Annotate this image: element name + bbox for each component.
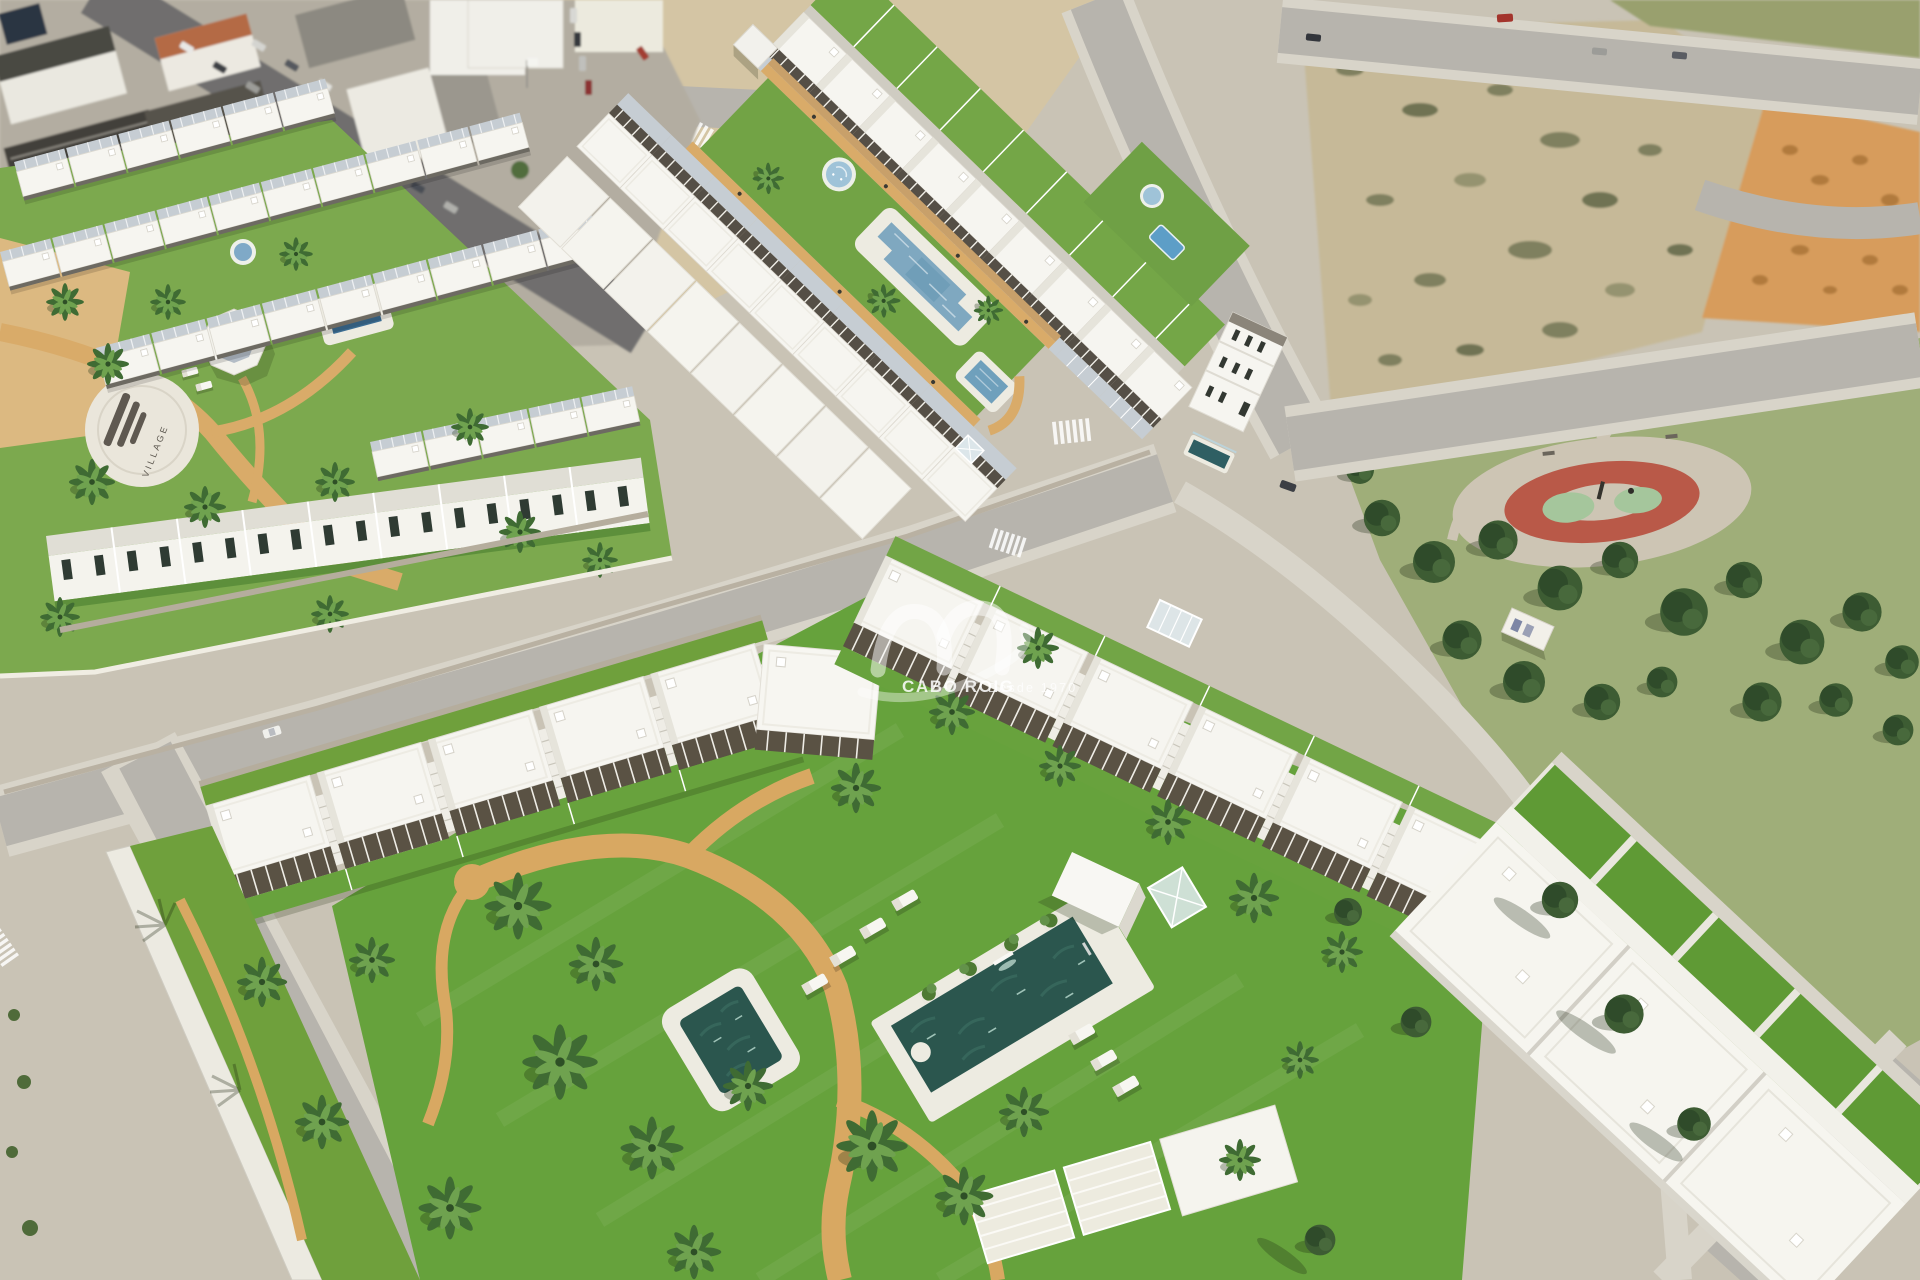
gray-car bbox=[1672, 51, 1688, 59]
red-car bbox=[1497, 13, 1514, 22]
watermark-tagline: Desde 1970 bbox=[988, 681, 1077, 695]
path-junction-pad bbox=[454, 864, 490, 900]
white-block bbox=[468, 0, 563, 68]
palm-tree bbox=[295, 1095, 350, 1150]
scene-canvas: VILLAGE bbox=[0, 0, 1920, 1280]
garden-round-pool bbox=[230, 239, 256, 265]
gray-car bbox=[1592, 47, 1608, 55]
white-block bbox=[575, 0, 663, 52]
palm-tree bbox=[237, 957, 287, 1007]
aerial-render-of-residential-development: VILLAGE bbox=[0, 0, 1920, 1280]
